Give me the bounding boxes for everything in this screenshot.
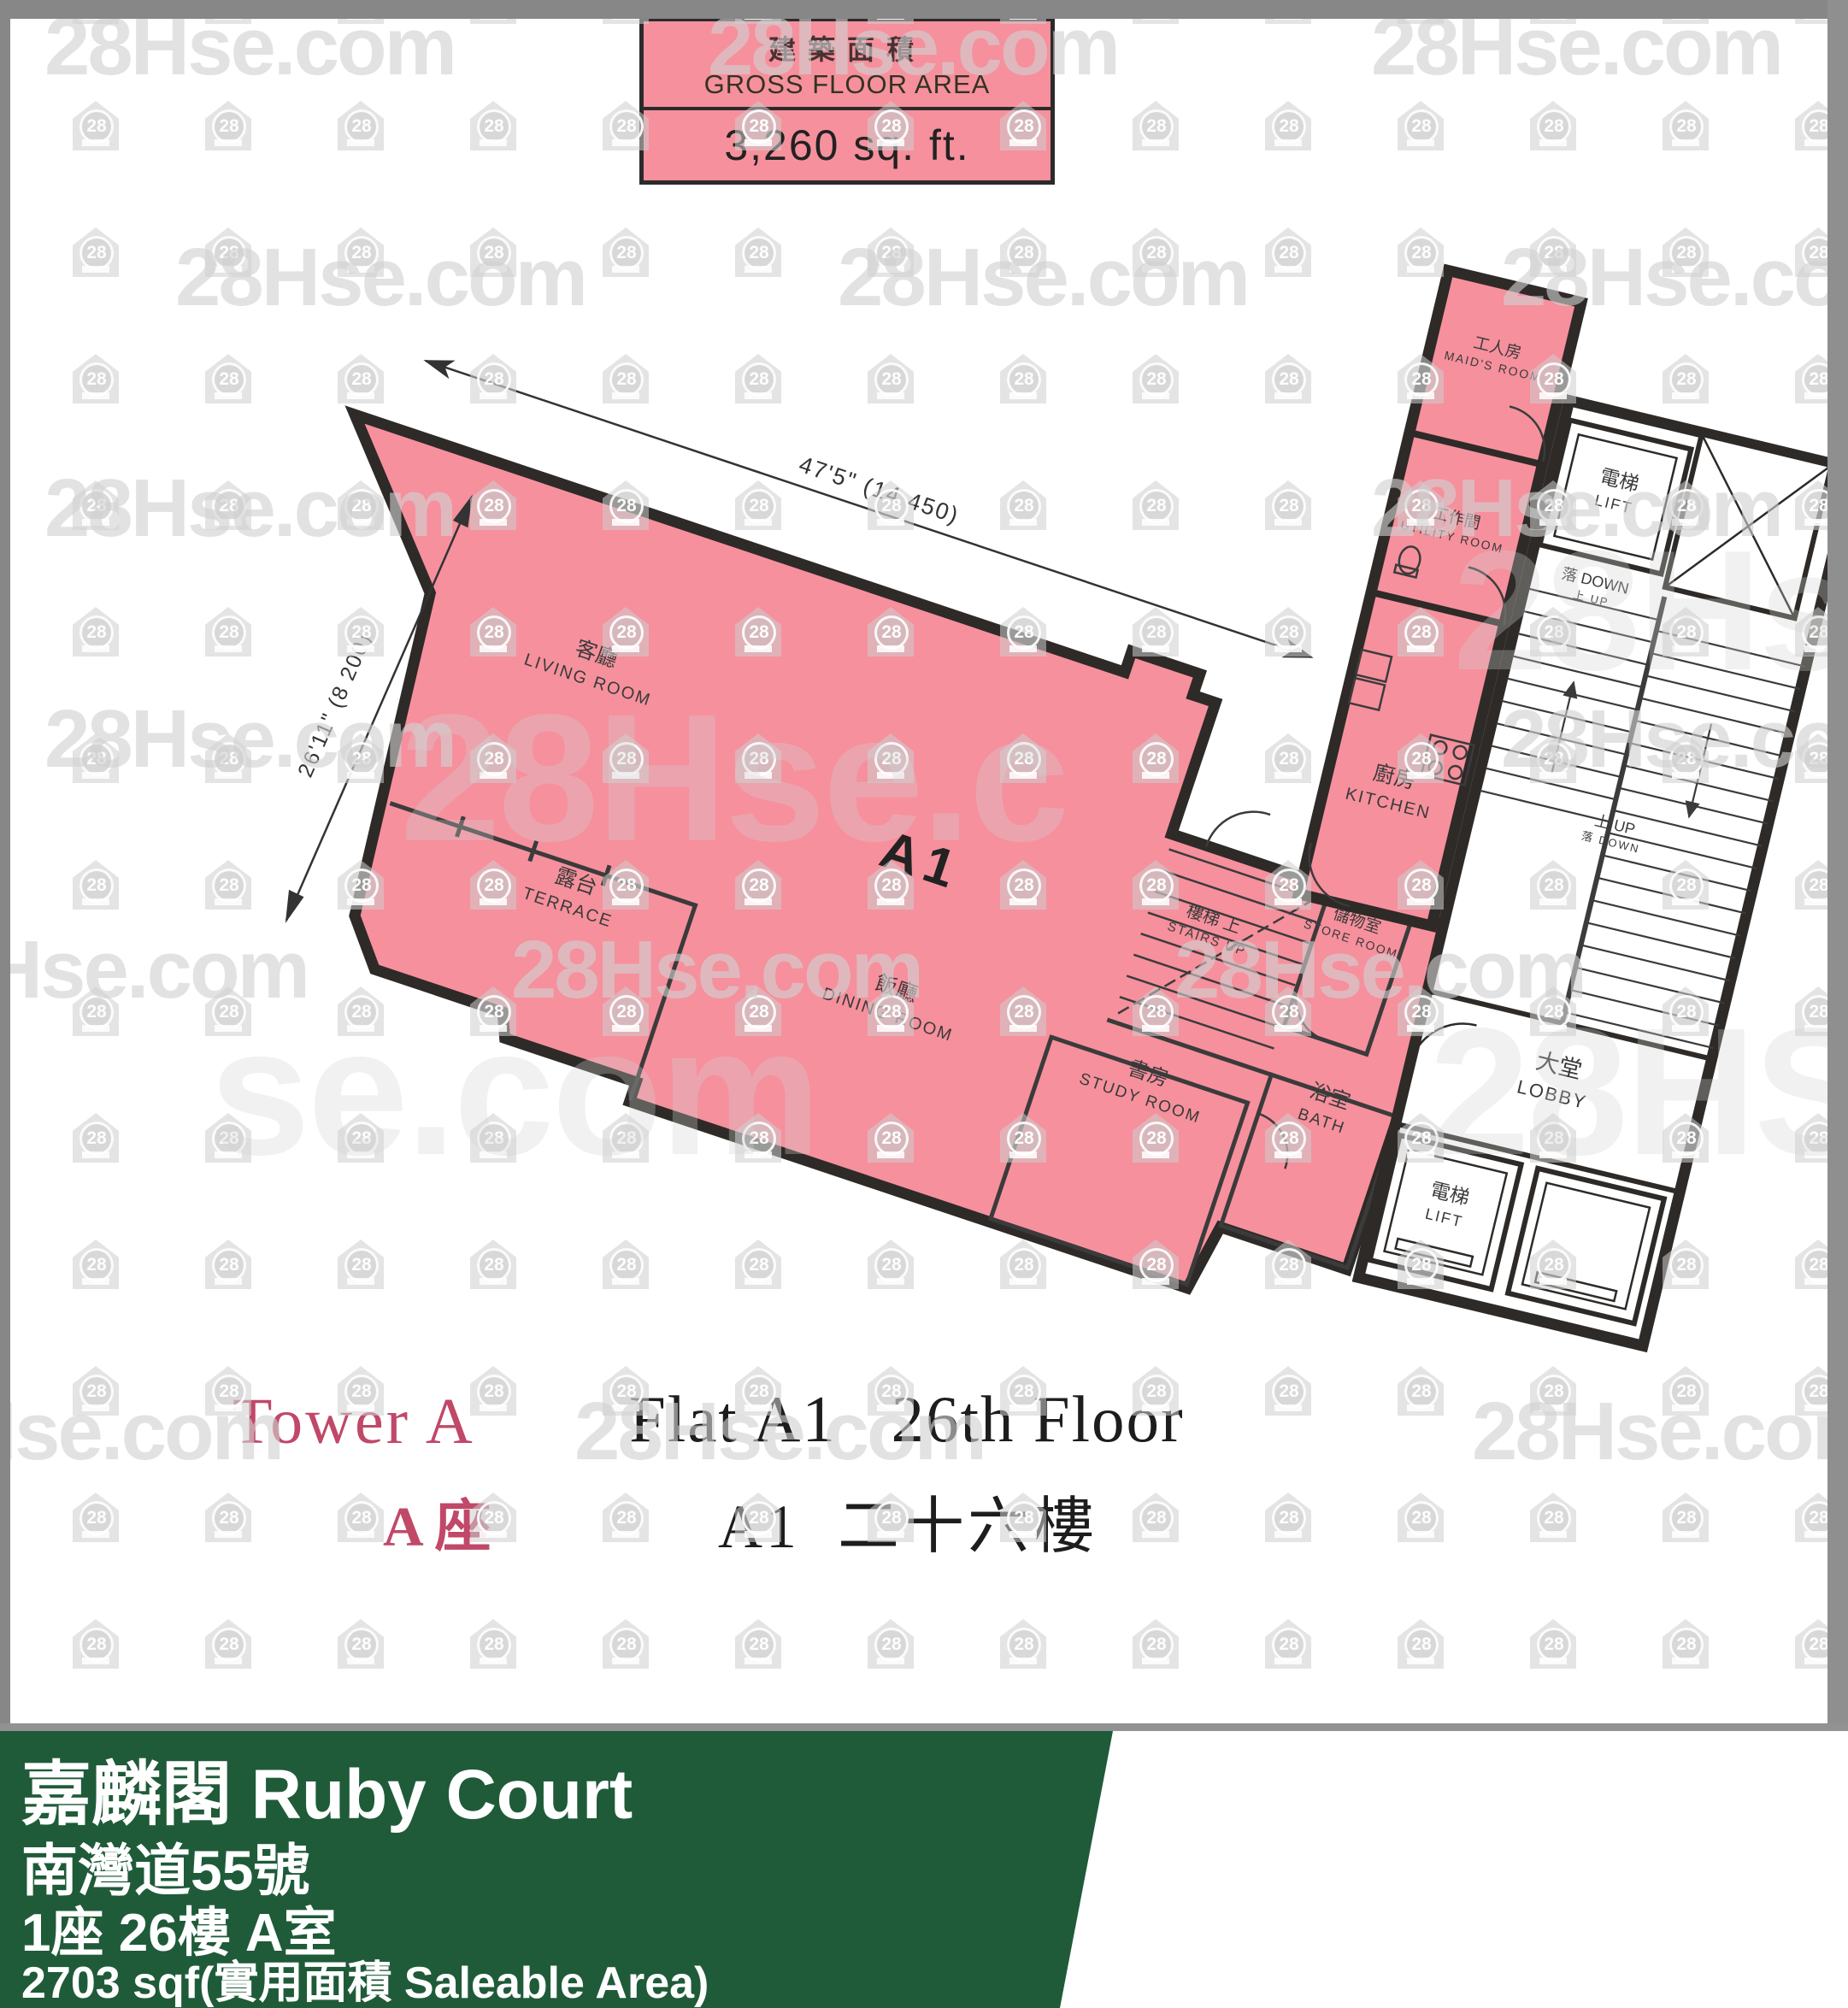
scan-border-left xyxy=(0,0,10,1731)
building-name: 嘉麟閣 Ruby Court xyxy=(21,1737,633,1839)
dimension-height-label: 26'11" (8 200) xyxy=(293,629,377,781)
scan-border-bottom xyxy=(0,1723,1848,1731)
flat-label-zh: A1 二十六樓 xyxy=(718,1475,1098,1565)
flat-label-en: Flat A1 26th Floor xyxy=(629,1381,1185,1457)
gfa-divider xyxy=(644,107,1051,110)
gfa-value: 3,260 sq. ft. xyxy=(644,121,1051,170)
floorplan-svg: 47'5" (14 450) 26'11" (8 200) A1 客廳LIVIN… xyxy=(0,0,1848,2008)
gfa-title-en: GROSS FLOOR AREA xyxy=(644,69,1051,100)
floorplan-page: 47'5" (14 450) 26'11" (8 200) A1 客廳LIVIN… xyxy=(0,0,1848,2008)
tower-label-en: Tower A xyxy=(232,1385,475,1459)
scan-border-right xyxy=(1827,0,1848,1731)
dimension-width-label: 47'5" (14 450) xyxy=(796,451,962,529)
gfa-title-zh: 建築面積 xyxy=(644,28,1051,68)
scan-border-top xyxy=(0,0,1848,19)
tower-label-zh: A 座 xyxy=(383,1481,491,1563)
footer-banner: 嘉麟閣 Ruby Court 南灣道55號 1座 26樓 A室 2703 sqf… xyxy=(0,1731,1848,2008)
gross-floor-area-box: 建築面積 GROSS FLOOR AREA 3,260 sq. ft. xyxy=(639,17,1055,185)
saleable-area: 2703 sqf(實用面積 Saleable Area) xyxy=(21,1946,709,2008)
